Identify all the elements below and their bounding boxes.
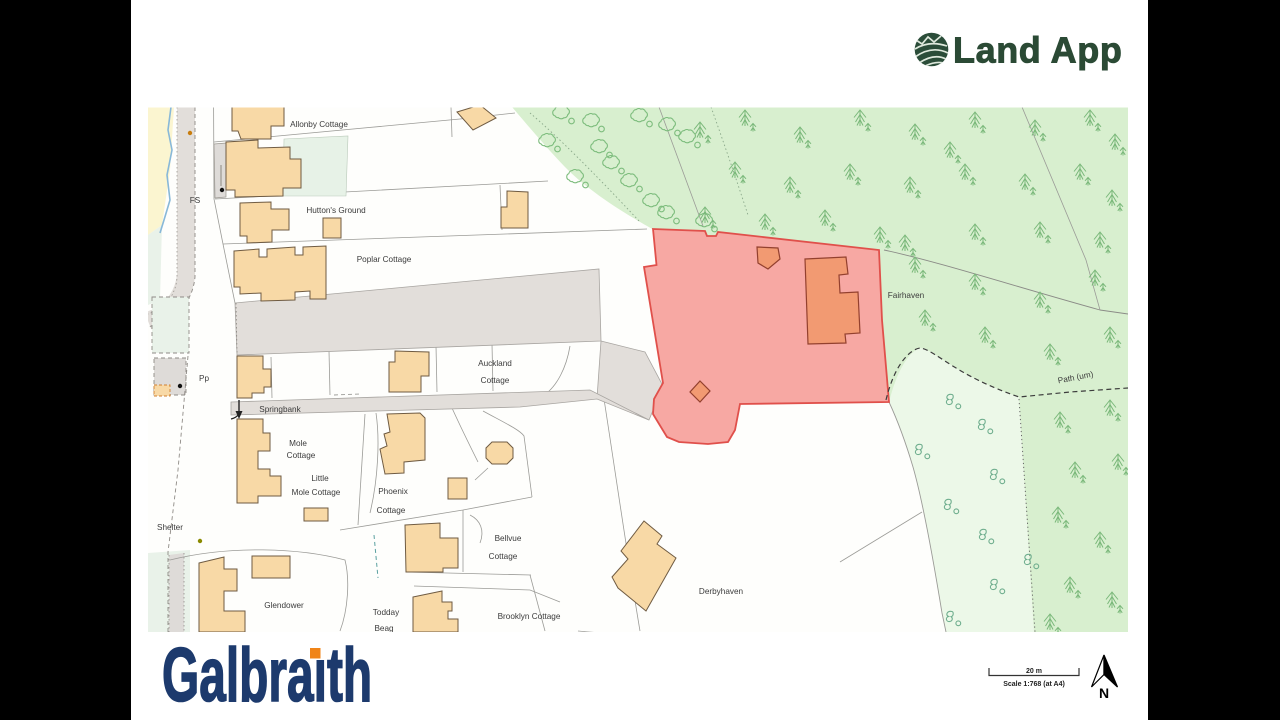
svg-text:Phoenix: Phoenix <box>378 487 408 496</box>
svg-text:Galbraıth: Galbraıth <box>162 634 372 718</box>
svg-text:Springbank: Springbank <box>259 405 301 414</box>
svg-text:N: N <box>1099 685 1109 701</box>
svg-text:Todday: Todday <box>373 608 400 617</box>
svg-text:Bellvue: Bellvue <box>495 534 522 543</box>
svg-text:Fairhaven: Fairhaven <box>888 291 925 300</box>
svg-text:Allonby Cottage: Allonby Cottage <box>290 120 348 129</box>
svg-text:Cottage: Cottage <box>489 552 518 561</box>
svg-text:Little: Little <box>311 474 329 483</box>
svg-text:Land App: Land App <box>953 30 1122 71</box>
svg-text:20 m: 20 m <box>1026 668 1042 675</box>
svg-text:Scale 1:768 (at A4): Scale 1:768 (at A4) <box>1003 681 1065 688</box>
svg-text:Auckland: Auckland <box>478 359 512 368</box>
svg-text:Mole Cottage: Mole Cottage <box>292 488 341 497</box>
svg-text:Beag: Beag <box>374 624 394 633</box>
svg-text:Glendower: Glendower <box>264 601 304 610</box>
svg-text:Shelter: Shelter <box>157 523 183 532</box>
svg-text:FS: FS <box>190 196 201 205</box>
svg-text:Pp: Pp <box>199 374 209 383</box>
svg-text:Derbyhaven: Derbyhaven <box>699 587 744 596</box>
svg-text:Cottage: Cottage <box>287 451 316 460</box>
svg-text:Brooklyn Cottage: Brooklyn Cottage <box>498 612 561 621</box>
svg-text:Mole: Mole <box>289 439 307 448</box>
svg-text:Hutton's Ground: Hutton's Ground <box>306 206 366 215</box>
svg-text:Poplar Cottage: Poplar Cottage <box>357 255 412 264</box>
svg-text:Cottage: Cottage <box>481 376 510 385</box>
svg-text:Cottage: Cottage <box>377 506 406 515</box>
